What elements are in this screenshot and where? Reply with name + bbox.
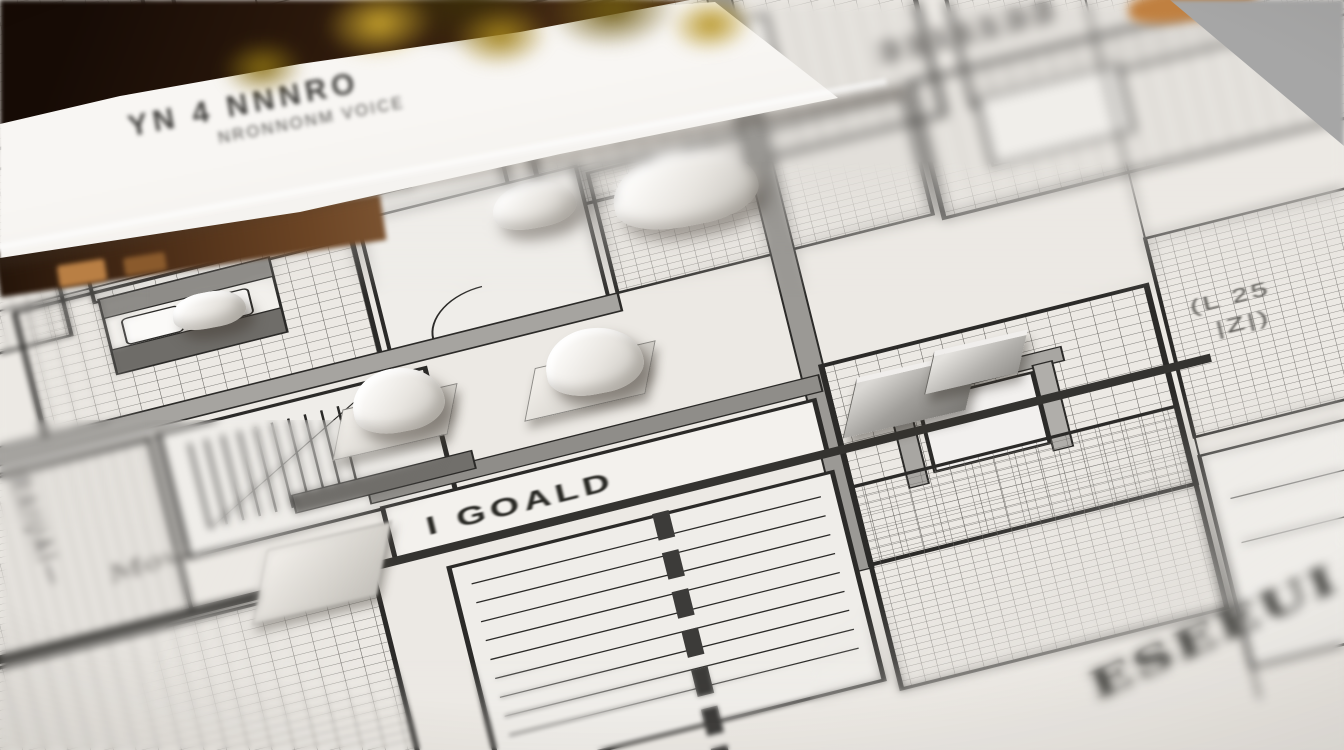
blueprint-photo-scene: I GOALD IRAIUAI— (L 25 |Z|) 3111133 ESEE… (0, 0, 1344, 750)
